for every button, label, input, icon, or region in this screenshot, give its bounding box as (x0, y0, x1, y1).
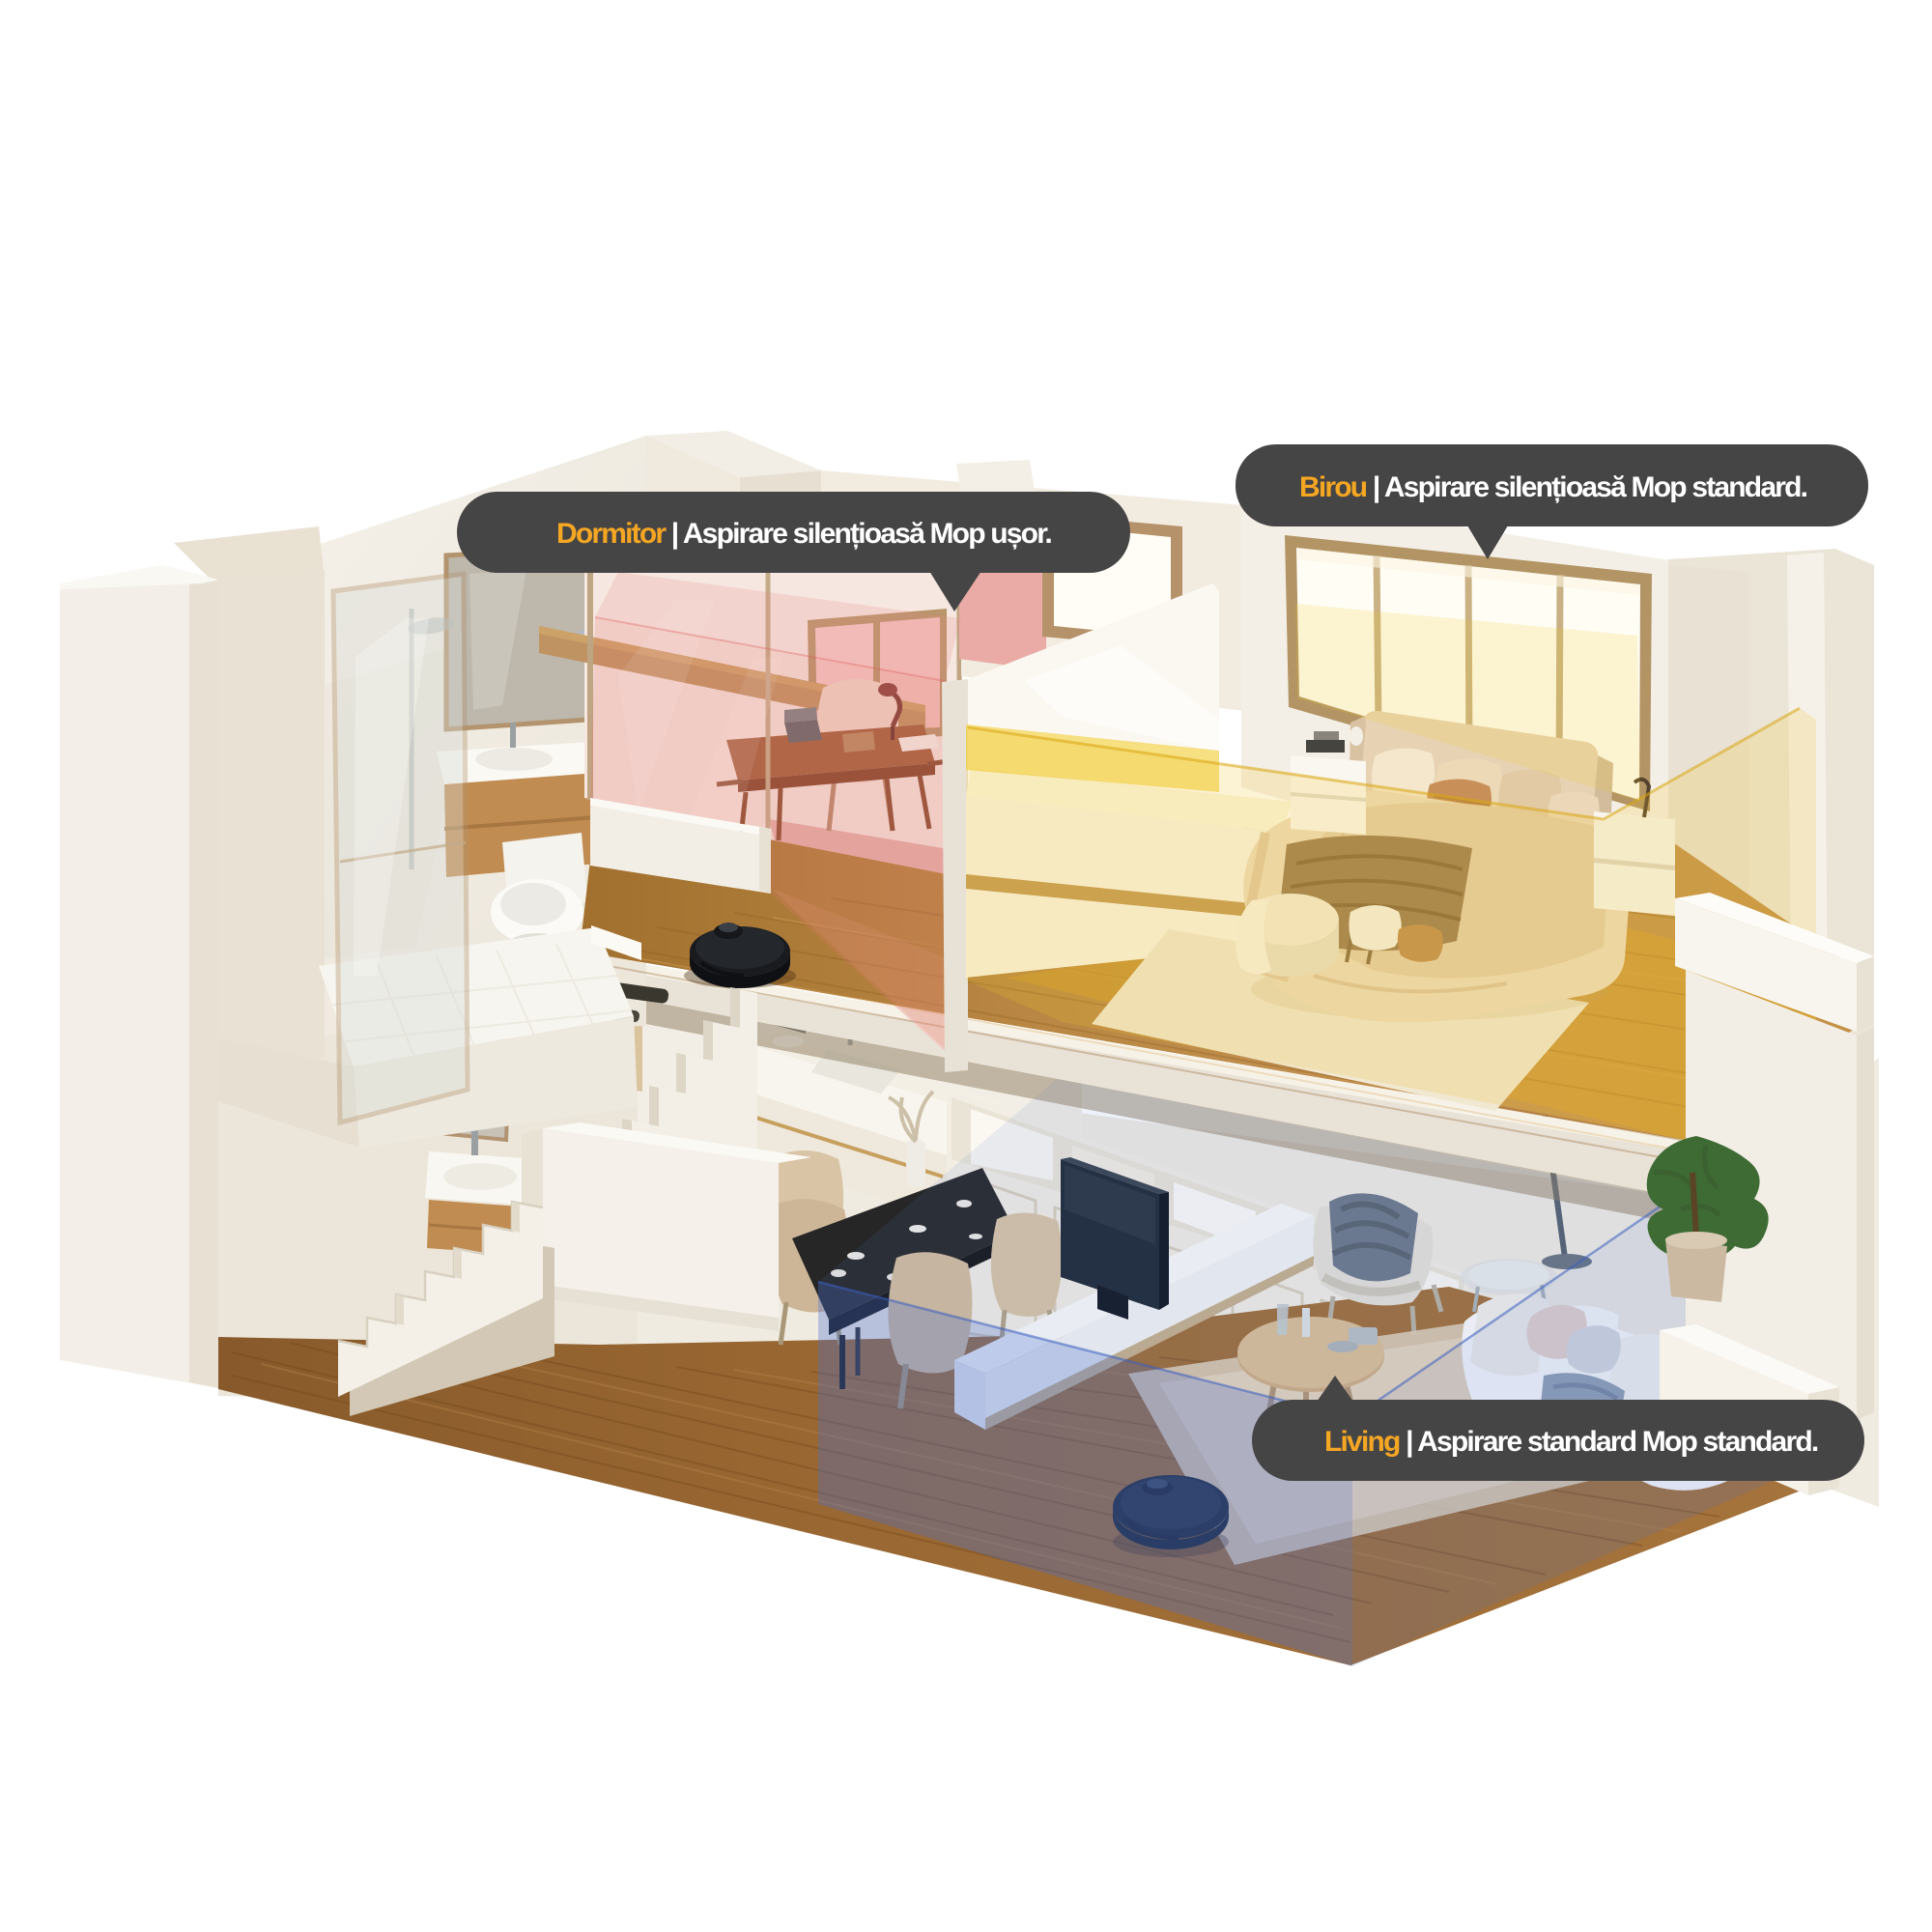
svg-text:Birou | Aspirare silențioasă M: Birou | Aspirare silențioasă Mop standar… (1299, 471, 1807, 503)
svg-text:Dormitor | Aspirare silențioas: Dormitor | Aspirare silențioasă Mop ușor… (556, 518, 1051, 550)
svg-text:Living | Aspirare standard Mop: Living | Aspirare standard Mop standard. (1324, 1426, 1818, 1458)
